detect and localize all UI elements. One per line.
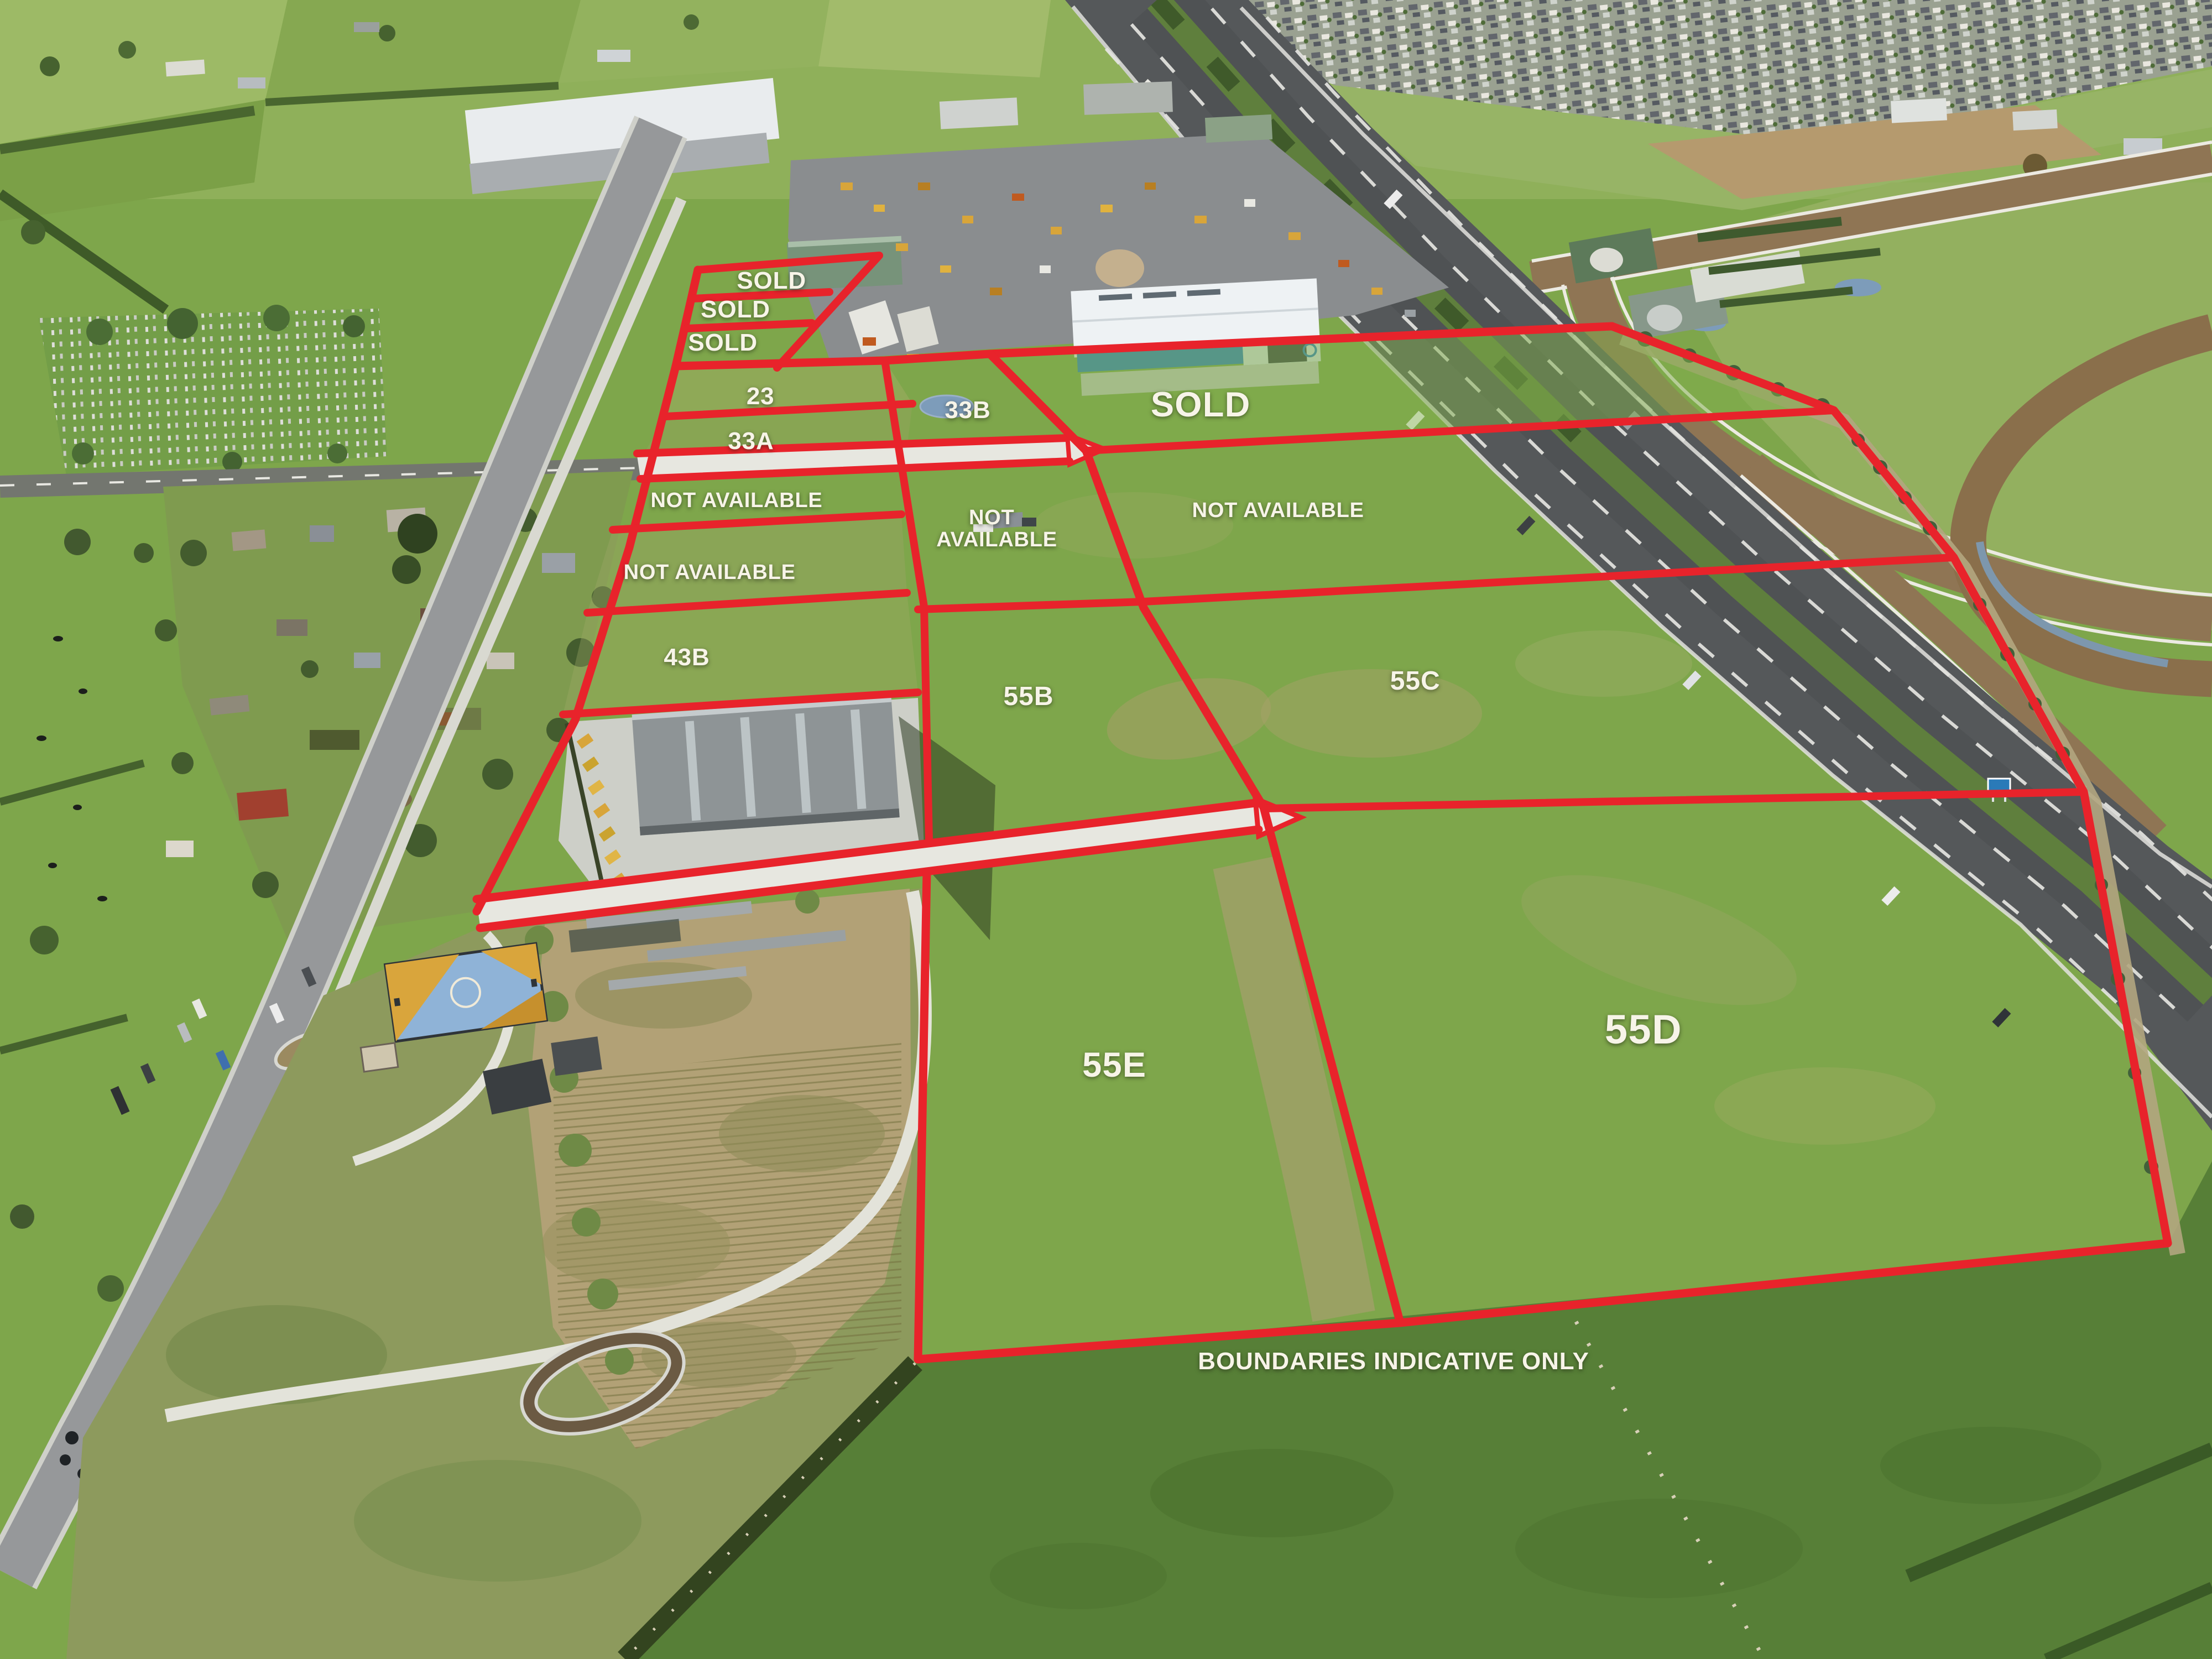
lot-label-sold-main: SOLD xyxy=(1151,387,1251,423)
lot-label-sold-b: SOLD xyxy=(701,297,770,322)
lot-label-sold-a: SOLD xyxy=(737,268,806,294)
labels-layer: BOUNDARIES INDICATIVE ONLY SOLDSOLDSOLD2… xyxy=(0,0,2212,1659)
lot-label-lot-55c: 55C xyxy=(1390,667,1441,695)
lot-label-lot-33a: 33A xyxy=(728,429,774,454)
site-aerial-view: BOUNDARIES INDICATIVE ONLY SOLDSOLDSOLD2… xyxy=(0,0,2212,1659)
lot-label-lot-55d: 55D xyxy=(1605,1008,1682,1051)
lot-label-lot-43b: 43B xyxy=(664,645,709,670)
lot-label-not-available-2: NOT AVAILABLE xyxy=(624,562,796,584)
lot-label-lot-33b: 33B xyxy=(945,398,990,423)
lot-label-sold-c: SOLD xyxy=(688,330,758,356)
lot-label-not-available-centre: NOT AVAILABLE xyxy=(936,507,1047,551)
lot-label-not-available-1: NOT AVAILABLE xyxy=(650,490,822,512)
lot-label-lot-55b: 55B xyxy=(1004,683,1054,711)
lot-label-lot-23: 23 xyxy=(747,384,775,409)
disclaimer-text: BOUNDARIES INDICATIVE ONLY xyxy=(1198,1348,1589,1374)
lot-label-not-available-right: NOT AVAILABLE xyxy=(1192,500,1364,522)
lot-label-lot-55e: 55E xyxy=(1082,1047,1146,1083)
